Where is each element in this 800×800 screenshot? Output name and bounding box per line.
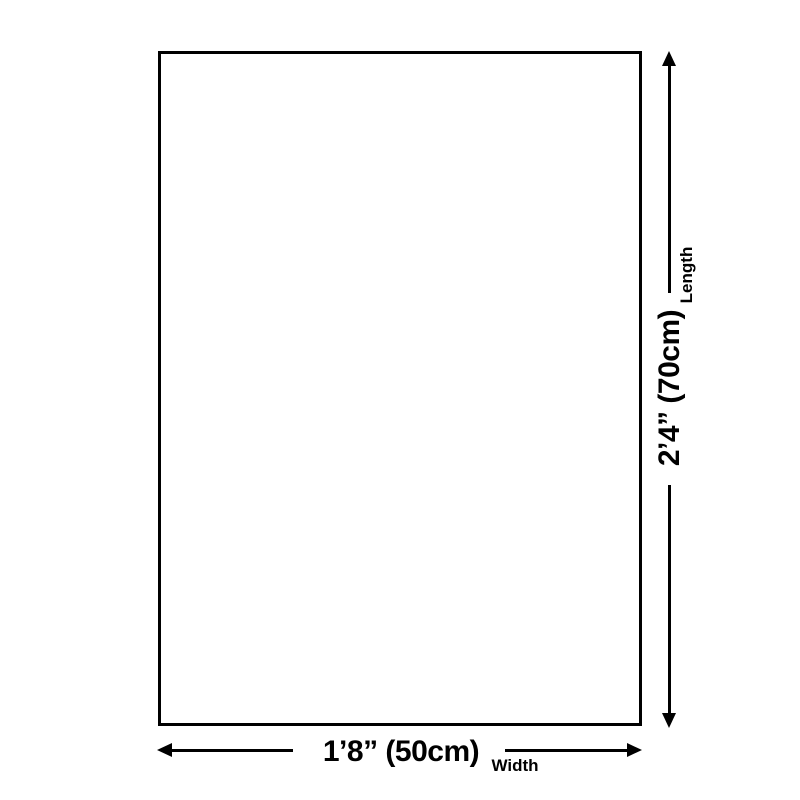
width-dimension-line-left: [170, 749, 293, 752]
length-dimension-line-upper: [668, 63, 671, 293]
product-outline-rectangle: [158, 51, 642, 726]
length-dimension-value: 2’4” (70cm): [653, 310, 687, 466]
width-dimension-line-right: [505, 749, 633, 752]
arrow-down-icon: [662, 713, 676, 728]
width-dimension-value: 1’8” (50cm): [323, 735, 479, 769]
width-dimension-label: Width: [491, 756, 538, 776]
dimension-diagram: 2’4” (70cm) Length 1’8” (50cm) Width: [0, 0, 800, 800]
arrow-right-icon: [627, 743, 642, 757]
length-dimension-label: Length: [677, 247, 697, 304]
length-dimension-line-lower: [668, 485, 671, 715]
